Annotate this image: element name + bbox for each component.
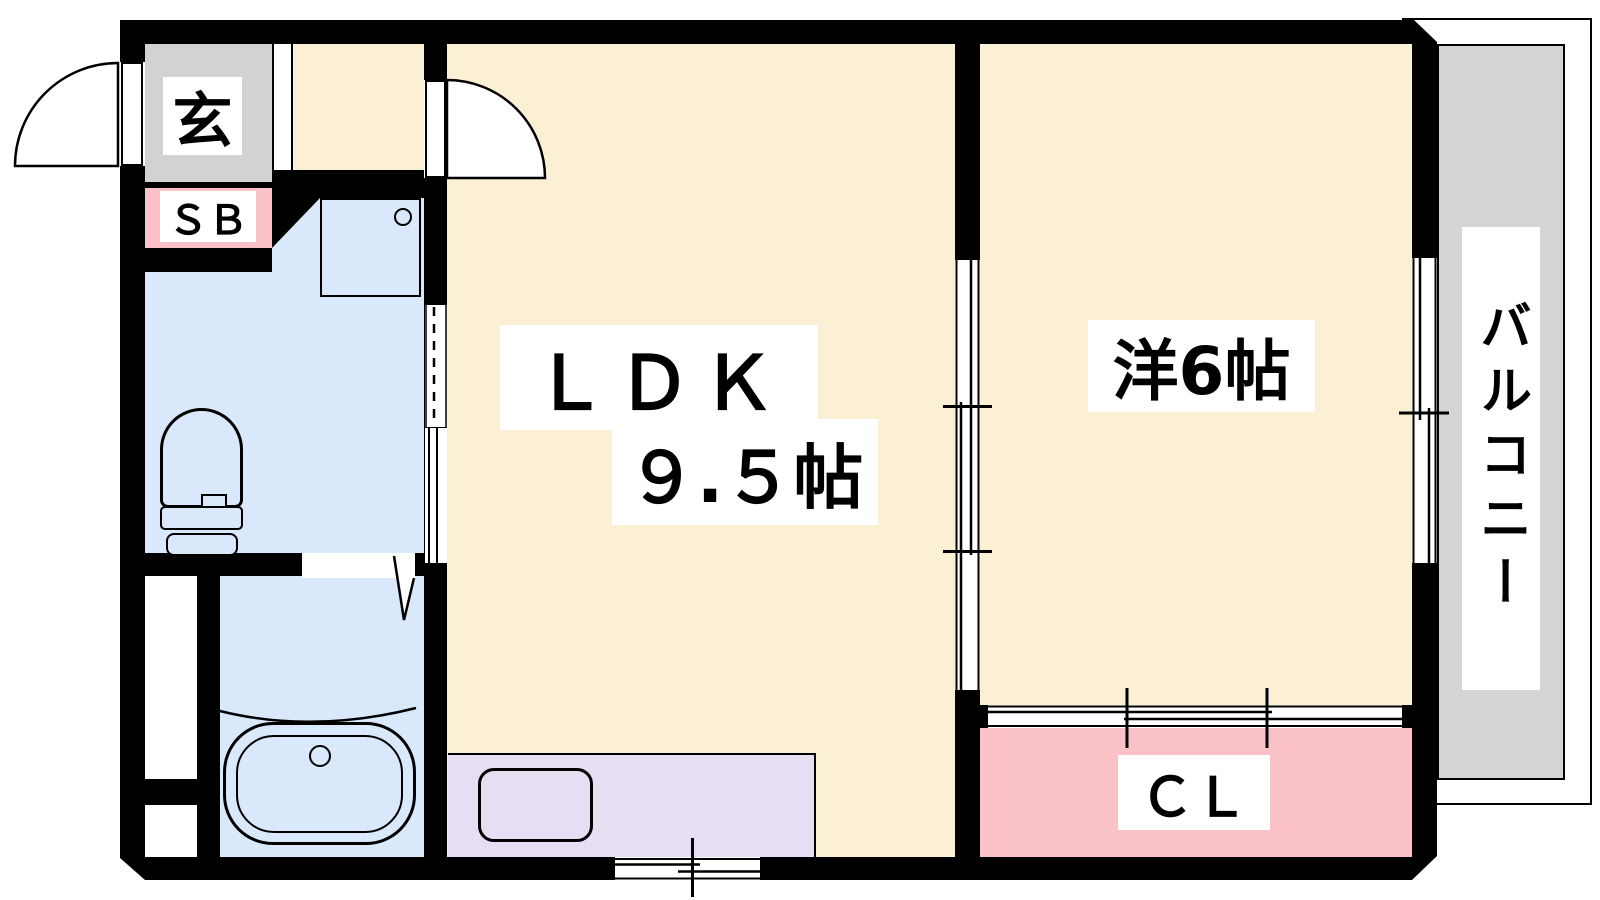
- kitchen-sink-icon: [478, 768, 593, 842]
- balcony-label: バルコニー: [1462, 227, 1540, 690]
- shoe-box-label: ＳＢ: [160, 191, 256, 242]
- entrance-door-swing-icon: [15, 63, 118, 166]
- ldk-size-label: ９.５帖: [612, 419, 878, 525]
- toilet-bowl-icon: [160, 408, 243, 508]
- toilet-tank-icon: [160, 506, 243, 530]
- room-hallway: [293, 44, 424, 170]
- kitchen-window-icon: [615, 857, 760, 880]
- washbasin-icon: [320, 198, 421, 297]
- entrance-threshold: [272, 44, 293, 185]
- pipe-space-upper: [145, 576, 197, 779]
- entrance-door-leaf-icon: [121, 62, 143, 166]
- entrance-label: 玄: [163, 77, 242, 155]
- ldk-name-label: ＬＤＫ: [500, 325, 818, 430]
- washroom-accordion-door-icon: [425, 305, 447, 427]
- ldk-door-leaf-icon: [425, 80, 446, 178]
- closet-label: ＣＬ: [1118, 755, 1270, 830]
- washbasin-faucet-icon: [394, 208, 412, 226]
- toilet-base: [166, 533, 238, 556]
- floorplan: 玄 ＳＢ ＬＤＫ ９.５帖 洋6帖 ＣＬ バルコニー: [0, 0, 1600, 900]
- ldk-western-sliding-door-icon: [955, 260, 980, 690]
- bathtub-drain-icon: [309, 745, 331, 767]
- balcony-window-icon: [1412, 258, 1437, 563]
- washroom-slide-opening: [425, 428, 447, 563]
- pipe-space-lower: [145, 805, 197, 857]
- closet-sliding-door-icon: [988, 705, 1402, 728]
- western-room-label: 洋6帖: [1088, 320, 1315, 412]
- bathroom-door-gap: [302, 553, 415, 578]
- wall-below-shoebox: [145, 248, 272, 272]
- wall-hall-washroom: [272, 170, 424, 198]
